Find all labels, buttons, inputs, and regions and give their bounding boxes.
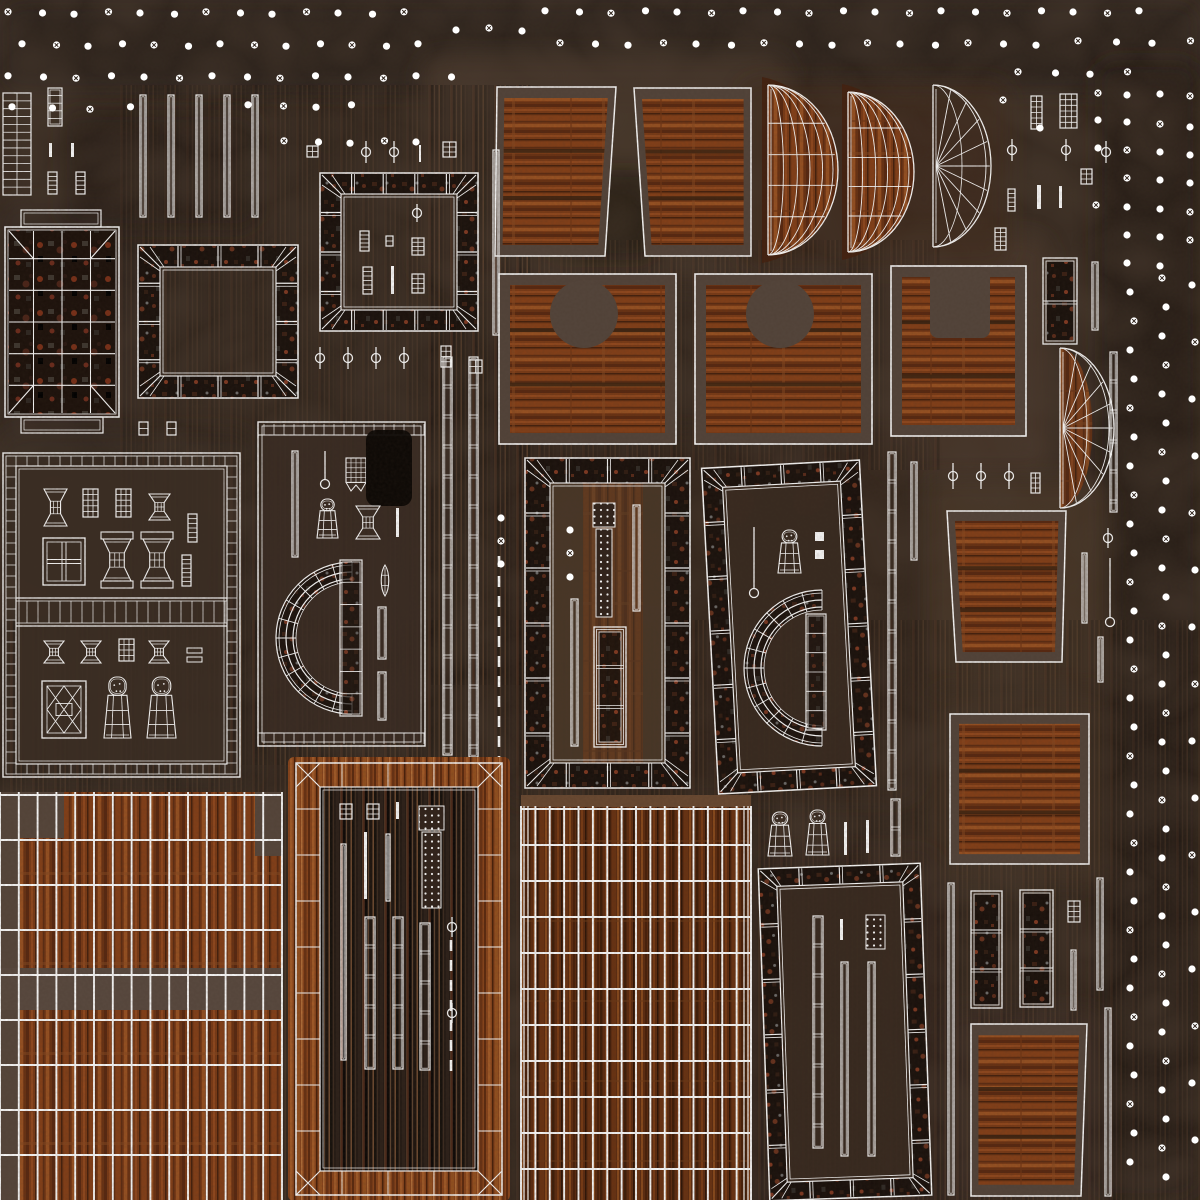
vertex-dot bbox=[1000, 40, 1007, 47]
vertex-dot bbox=[452, 26, 459, 33]
vertex-dot bbox=[1123, 91, 1130, 98]
vertex-dot bbox=[1162, 767, 1169, 774]
vertex-dot bbox=[4, 72, 11, 79]
vertex-dot bbox=[315, 138, 322, 145]
vertex-dot bbox=[1158, 1086, 1165, 1093]
vertex-dot bbox=[1191, 1136, 1198, 1143]
vertex-dot bbox=[1158, 390, 1165, 397]
vertex-dot bbox=[1162, 593, 1169, 600]
vertex-dot bbox=[208, 72, 215, 79]
vertex-dot bbox=[1130, 1129, 1137, 1136]
vertex-dot bbox=[312, 104, 319, 111]
vertex-dot bbox=[237, 9, 244, 16]
vertex-dot bbox=[566, 526, 573, 533]
vertex-dot bbox=[8, 103, 15, 110]
vertex-dot bbox=[171, 11, 178, 18]
vertex-dot bbox=[1130, 897, 1137, 904]
vertex-dot bbox=[1158, 854, 1165, 861]
vertex-dot bbox=[1126, 346, 1133, 353]
vertex-dot bbox=[119, 40, 126, 47]
vertex-dot bbox=[18, 40, 25, 47]
vertex-dot bbox=[828, 42, 835, 49]
vertex-dot bbox=[1156, 205, 1163, 212]
vertex-dot bbox=[1123, 259, 1130, 266]
grain-overlay bbox=[0, 0, 1200, 1200]
vertex-dot bbox=[774, 8, 781, 15]
vertex-dot bbox=[1126, 694, 1133, 701]
vertex-dot bbox=[1162, 941, 1169, 948]
vertex-dot bbox=[1126, 520, 1133, 527]
vertex-dot bbox=[1038, 7, 1045, 14]
vertex-dot bbox=[1126, 984, 1133, 991]
vertex-dot bbox=[1123, 118, 1130, 125]
vertex-dot bbox=[1162, 1173, 1169, 1180]
vertex-dot bbox=[497, 560, 504, 567]
vertex-dot bbox=[1162, 999, 1169, 1006]
vertex-dot bbox=[1186, 179, 1193, 186]
vertex-dot bbox=[1123, 231, 1130, 238]
vertex-dot bbox=[1156, 90, 1163, 97]
vertex-dot bbox=[1188, 1079, 1195, 1086]
vertex-dot bbox=[312, 72, 319, 79]
vertex-dot bbox=[448, 73, 455, 80]
vertex-dot bbox=[624, 42, 631, 49]
vertex-dot bbox=[1156, 233, 1163, 240]
vertex-dot bbox=[642, 7, 649, 14]
vertex-dot bbox=[1094, 144, 1101, 151]
vertex-dot bbox=[692, 40, 699, 47]
vertex-dot bbox=[317, 40, 324, 47]
vertex-dot bbox=[1086, 71, 1093, 78]
vertex-dot bbox=[369, 11, 376, 18]
vertex-dot bbox=[1130, 955, 1137, 962]
vertex-dot bbox=[1162, 419, 1169, 426]
vertex-dot bbox=[383, 43, 390, 50]
vertex-dot bbox=[1032, 42, 1039, 49]
vertex-dot bbox=[1158, 564, 1165, 571]
vertex-dot bbox=[1130, 1071, 1137, 1078]
vertex-dot bbox=[1052, 69, 1059, 76]
vertex-dot bbox=[1126, 1042, 1133, 1049]
vertex-dot bbox=[1123, 203, 1130, 210]
vertex-dot bbox=[1126, 462, 1133, 469]
vertex-dot bbox=[39, 9, 46, 16]
vertex-dot bbox=[348, 101, 355, 108]
vertex-dot bbox=[1094, 116, 1101, 123]
vertex-dot bbox=[412, 138, 419, 145]
vertex-dot bbox=[414, 40, 421, 47]
vertex-dot bbox=[1130, 781, 1137, 788]
vertex-dot bbox=[84, 43, 91, 50]
vertex-dot bbox=[1156, 262, 1163, 269]
vertex-dot bbox=[1158, 506, 1165, 513]
vertex-dot bbox=[972, 8, 979, 15]
vertex-dot bbox=[1069, 8, 1076, 15]
uv-texture-atlas-image bbox=[0, 0, 1200, 1200]
vertex-dot bbox=[566, 573, 573, 580]
vertex-dot bbox=[728, 42, 735, 49]
vertex-dot bbox=[1191, 794, 1198, 801]
vertex-dot bbox=[1188, 281, 1195, 288]
vertex-dot bbox=[1186, 151, 1193, 158]
vertex-dot bbox=[40, 73, 47, 80]
vertex-dot bbox=[344, 73, 351, 80]
vertex-dot bbox=[1130, 723, 1137, 730]
vertex-dot bbox=[1188, 395, 1195, 402]
vertex-dot bbox=[1158, 738, 1165, 745]
vertex-dot bbox=[1186, 123, 1193, 130]
vertex-dot bbox=[282, 43, 289, 50]
vertex-dot bbox=[1156, 176, 1163, 183]
vertex-dot bbox=[1113, 38, 1120, 45]
vertex-dot bbox=[412, 72, 419, 79]
vertex-dot bbox=[796, 40, 803, 47]
vertex-dot bbox=[1158, 332, 1165, 339]
vertex-dot bbox=[1188, 623, 1195, 630]
vertex-dot bbox=[1148, 40, 1155, 47]
vertex-dot bbox=[1156, 148, 1163, 155]
vertex-dot bbox=[1162, 1115, 1169, 1122]
vertex-dot bbox=[673, 8, 680, 15]
vertex-dot bbox=[1126, 636, 1133, 643]
vertex-dot bbox=[1135, 7, 1142, 14]
vertex-dot bbox=[1191, 908, 1198, 915]
vertex-dot bbox=[1162, 477, 1169, 484]
vertex-dot bbox=[1191, 452, 1198, 459]
vertex-dot bbox=[1162, 651, 1169, 658]
vertex-dot bbox=[1126, 868, 1133, 875]
vertex-dot bbox=[334, 9, 341, 16]
vertex-dot bbox=[1191, 566, 1198, 573]
vertex-dot bbox=[1162, 825, 1169, 832]
vertex-dot bbox=[185, 43, 192, 50]
vertex-dot bbox=[136, 9, 143, 16]
vertex-dot bbox=[937, 7, 944, 14]
vertex-dot bbox=[497, 514, 504, 521]
vertex-dot bbox=[896, 40, 903, 47]
fine-grain bbox=[0, 0, 1200, 1200]
vertex-dot bbox=[541, 7, 548, 14]
vertex-dot bbox=[140, 73, 147, 80]
vertex-dot bbox=[1126, 1158, 1133, 1165]
vertex-dot bbox=[1158, 680, 1165, 687]
texture-atlas-page bbox=[0, 0, 1200, 1200]
vertex-dot bbox=[739, 7, 746, 14]
vertex-dot bbox=[840, 7, 847, 14]
vertex-dot bbox=[49, 104, 56, 111]
vertex-dot bbox=[1130, 375, 1137, 382]
vertex-dot bbox=[871, 8, 878, 15]
vertex-dot bbox=[518, 27, 525, 34]
vertex-dot bbox=[1158, 1028, 1165, 1035]
vertex-dot bbox=[268, 11, 275, 18]
vertex-dot bbox=[592, 40, 599, 47]
vertex-dot bbox=[216, 40, 223, 47]
vertex-dot bbox=[576, 8, 583, 15]
vertex-dot bbox=[70, 11, 77, 18]
vertex-dot bbox=[1162, 303, 1169, 310]
vertex-dot bbox=[1130, 433, 1137, 440]
vertex-dot bbox=[1126, 288, 1133, 295]
vertex-dot bbox=[1188, 965, 1195, 972]
vertex-dot bbox=[244, 73, 251, 80]
vertex-dot bbox=[1130, 549, 1137, 556]
vertex-dot bbox=[932, 42, 939, 49]
vertex-dot bbox=[1188, 737, 1195, 744]
vertex-dot bbox=[346, 140, 353, 147]
vertex-dot bbox=[1158, 912, 1165, 919]
vertex-dot bbox=[108, 72, 115, 79]
vertex-dot bbox=[1130, 607, 1137, 614]
vertex-dot bbox=[1126, 810, 1133, 817]
vertex-dot bbox=[1036, 124, 1043, 131]
vertex-dot bbox=[127, 103, 134, 110]
vertex-dot bbox=[244, 101, 251, 108]
